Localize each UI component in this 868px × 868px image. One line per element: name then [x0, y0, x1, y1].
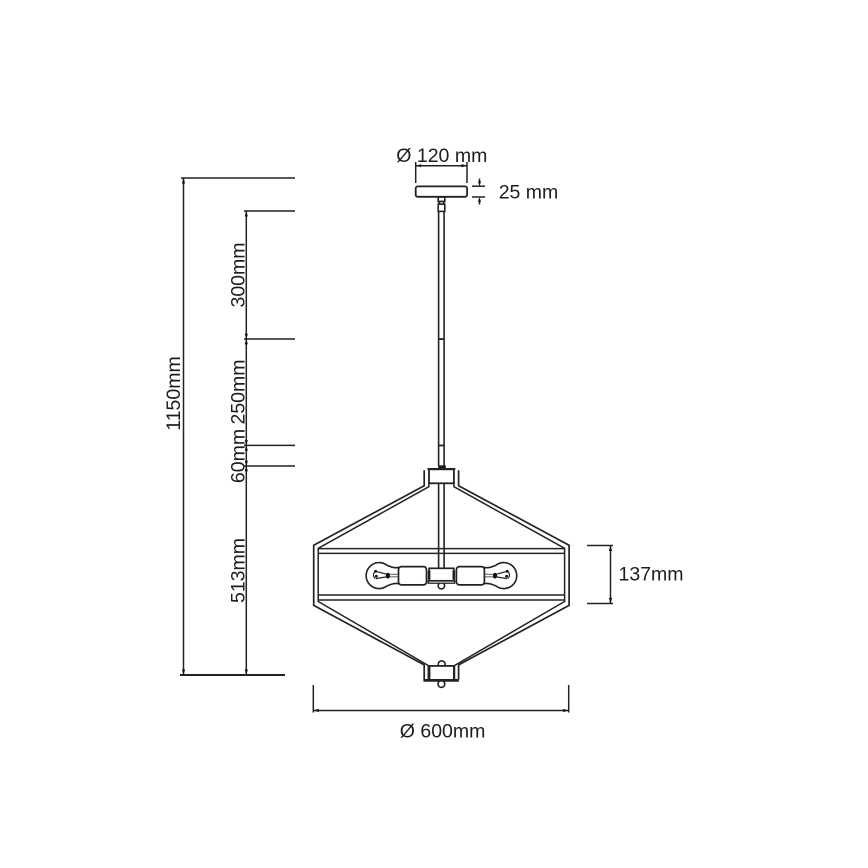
svg-text:Ø 600mm: Ø 600mm — [400, 721, 486, 743]
svg-text:137mm: 137mm — [619, 564, 684, 586]
svg-text:1150mm: 1150mm — [163, 356, 185, 430]
svg-text:300mm: 300mm — [227, 242, 249, 307]
svg-text:25 mm: 25 mm — [499, 182, 559, 204]
svg-text:60mm: 60mm — [227, 429, 249, 483]
svg-text:513mm: 513mm — [227, 538, 249, 603]
svg-text:250mm: 250mm — [227, 359, 249, 424]
svg-text:Ø 120 mm: Ø 120 mm — [396, 145, 487, 167]
